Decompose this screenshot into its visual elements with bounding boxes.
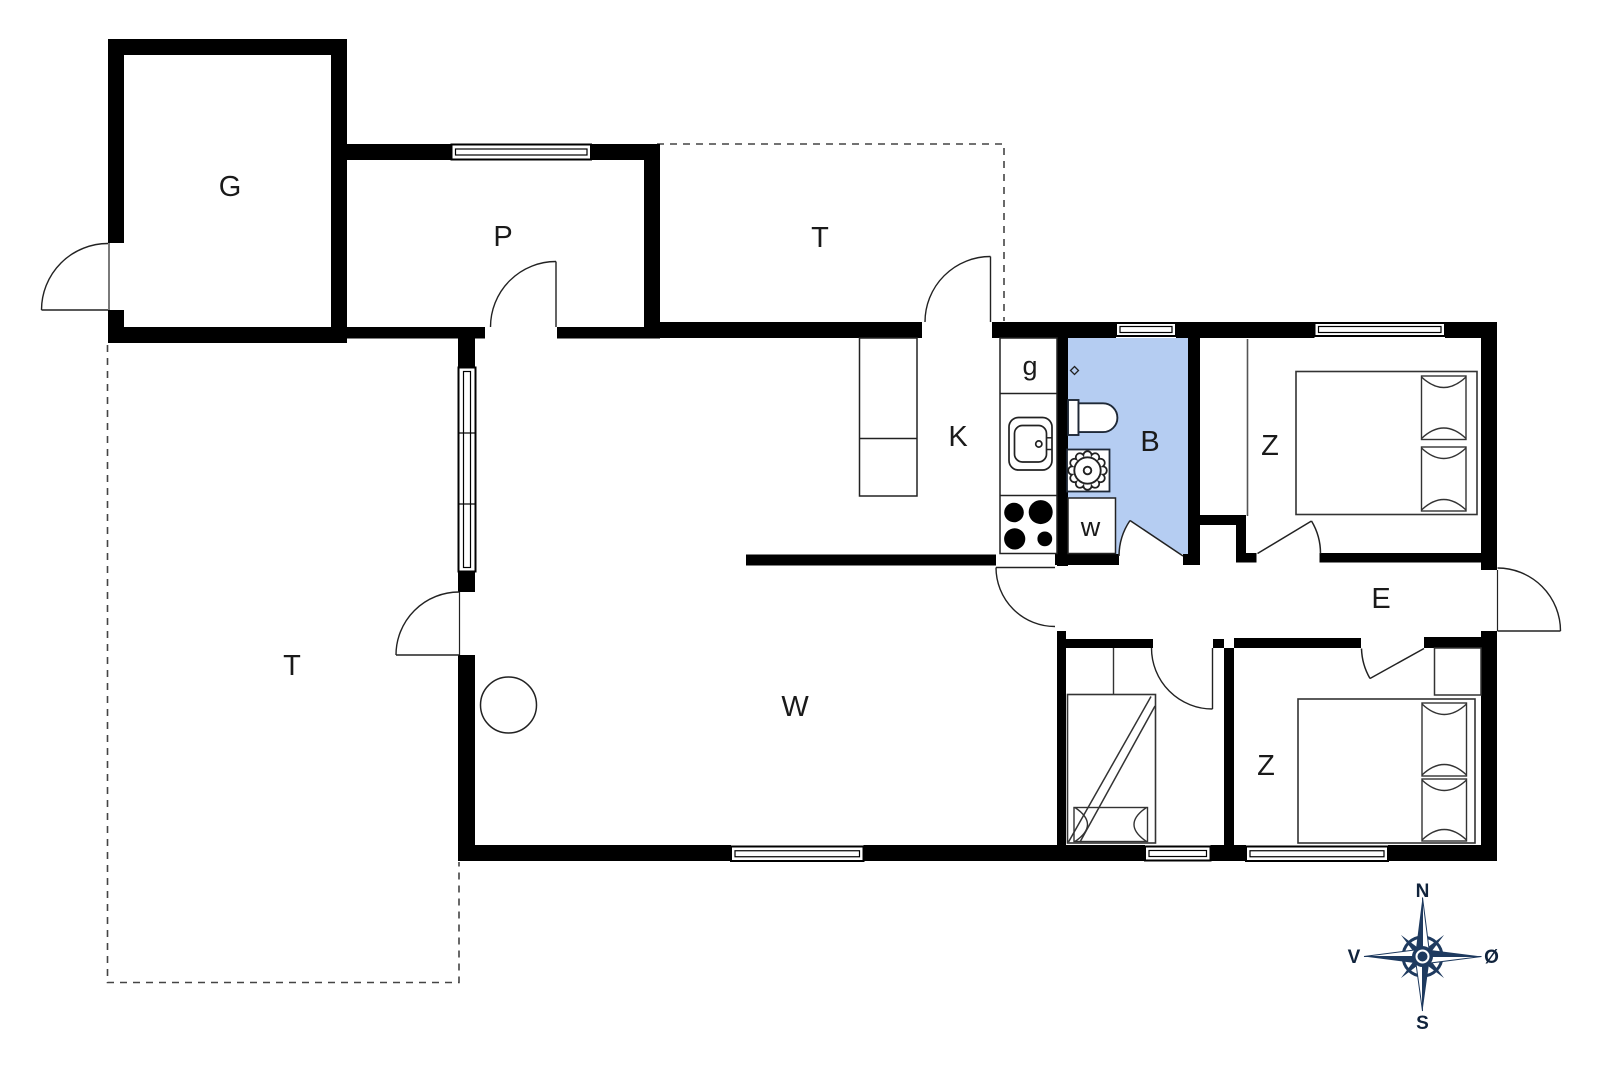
svg-text:S: S (1416, 1013, 1429, 1034)
svg-text:K: K (948, 421, 968, 453)
svg-text:E: E (1371, 583, 1390, 615)
svg-text:g: g (1022, 351, 1037, 381)
svg-text:G: G (219, 171, 242, 203)
svg-text:Z: Z (1257, 750, 1275, 782)
svg-text:T: T (283, 650, 301, 682)
svg-text:Z: Z (1261, 430, 1279, 462)
svg-text:Ø: Ø (1484, 947, 1499, 968)
svg-text:V: V (1348, 947, 1361, 968)
svg-text:P: P (493, 221, 512, 253)
svg-text:B: B (1140, 426, 1159, 458)
svg-text:w: w (1080, 512, 1101, 542)
svg-text:T: T (811, 222, 829, 254)
svg-text:N: N (1416, 881, 1430, 902)
svg-text:W: W (781, 691, 809, 723)
